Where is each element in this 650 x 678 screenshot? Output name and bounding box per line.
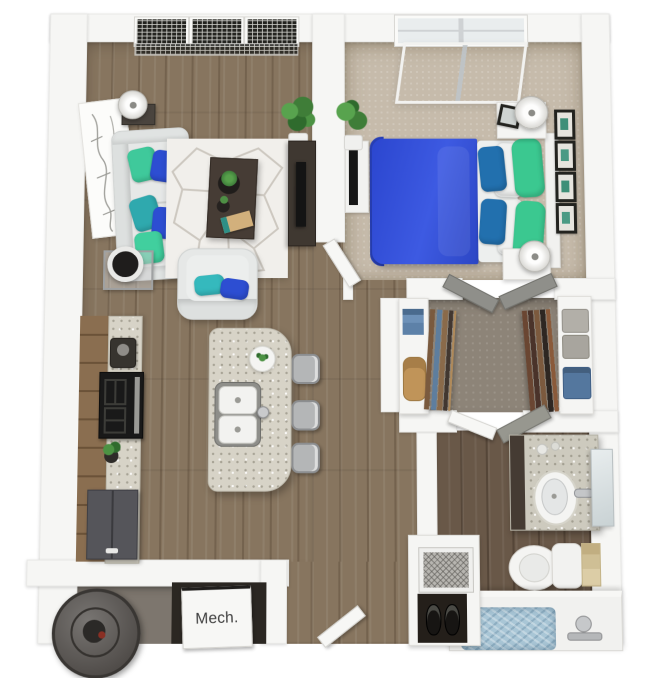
folded-jeans (403, 309, 424, 335)
wall-frame-2 (555, 141, 576, 171)
bedroom-tv (349, 148, 358, 205)
floorplan-scene: Mech. (0, 0, 650, 637)
bedroom-lamp-north (514, 96, 548, 129)
bedroom-skylight-glow (395, 42, 528, 104)
coffee-table (206, 157, 258, 239)
sink-basin-1 (218, 386, 257, 414)
mech-room-label: Mech. (195, 609, 239, 628)
bath-towel (581, 543, 601, 586)
coffee-table-book (220, 210, 253, 233)
comforter-sheen (437, 146, 470, 256)
bed-blue-pillow-2 (479, 198, 508, 245)
frame-art-4 (562, 212, 570, 224)
kitchen-plant-pot (100, 441, 123, 465)
vanity-soap-1 (536, 444, 547, 455)
stove (98, 372, 144, 439)
bathroom-west-wall (416, 433, 437, 539)
bed-comforter (372, 139, 479, 265)
kitchen-pot-leaves (102, 441, 121, 457)
fridge-handle (106, 548, 118, 553)
plant-foliage (278, 94, 316, 137)
island-faucet (257, 406, 269, 418)
bedroom-lamp-south (518, 240, 551, 272)
entry-closet (408, 535, 481, 646)
armchair-pillow-blue (219, 277, 250, 301)
entry-closet-vent (419, 548, 473, 591)
storage-bin-blue (563, 367, 592, 399)
bar-stool-3 (291, 443, 320, 474)
storage-bin-1 (562, 309, 590, 333)
stove-grate-2 (104, 407, 127, 433)
sink-drain-1 (235, 397, 241, 403)
heater-valve (98, 631, 105, 638)
stove-handle (134, 377, 140, 434)
coffee-maker-top (117, 344, 129, 356)
entry-floor (283, 562, 413, 644)
bowl-sprig (256, 352, 268, 364)
frame-art-3 (561, 181, 569, 193)
island-sink-unit (214, 382, 261, 447)
tv-screen (296, 162, 306, 227)
bar-stool-2 (291, 400, 319, 430)
entry-closet-opening (418, 594, 468, 643)
wall-frame-3 (555, 172, 576, 202)
coffee-maker (110, 338, 137, 368)
vanity-soap-2 (551, 442, 560, 451)
floor-plan: Mech. (0, 8, 650, 644)
living-window-1 (135, 17, 189, 46)
window-sill-grate (134, 43, 298, 55)
closet-shelf-right (557, 296, 594, 414)
bar-stool-1 (292, 354, 320, 384)
bathroom-vanity (509, 435, 600, 531)
vanity-sink-inner (541, 478, 568, 515)
armchair (177, 248, 258, 319)
shoe-left (426, 604, 442, 635)
living-window-2 (190, 17, 243, 46)
bedroom-plant (332, 96, 372, 150)
sink-basin-2 (218, 415, 257, 443)
duffel-bag (403, 357, 427, 401)
vanity-drain (552, 494, 557, 499)
water-heater (51, 589, 141, 678)
vanity-cabinet-edge (510, 436, 526, 530)
living-window-3 (245, 17, 298, 46)
shoe-right (444, 604, 460, 635)
mech-door: Mech. (181, 585, 253, 649)
wall-frame-1 (554, 110, 575, 140)
bedroom-plant-foliage (332, 96, 372, 141)
toilet-seat-inner (519, 553, 550, 582)
tub-faucet-knob (575, 616, 592, 633)
frame-art-1 (560, 118, 568, 130)
storage-bin-2 (562, 335, 590, 359)
bed-green-pillow-1 (511, 138, 546, 198)
island-bowl (249, 346, 275, 372)
sink-drain-2 (235, 426, 241, 432)
toilet-tank (551, 543, 583, 589)
frame-art-2 (561, 149, 569, 161)
bathroom-mirror (590, 449, 614, 527)
armchair-back (178, 299, 257, 319)
bed-blue-pillow-1 (477, 145, 507, 192)
stove-grate-1 (104, 379, 127, 405)
refrigerator (86, 490, 138, 560)
wall-frame-4 (556, 203, 578, 233)
